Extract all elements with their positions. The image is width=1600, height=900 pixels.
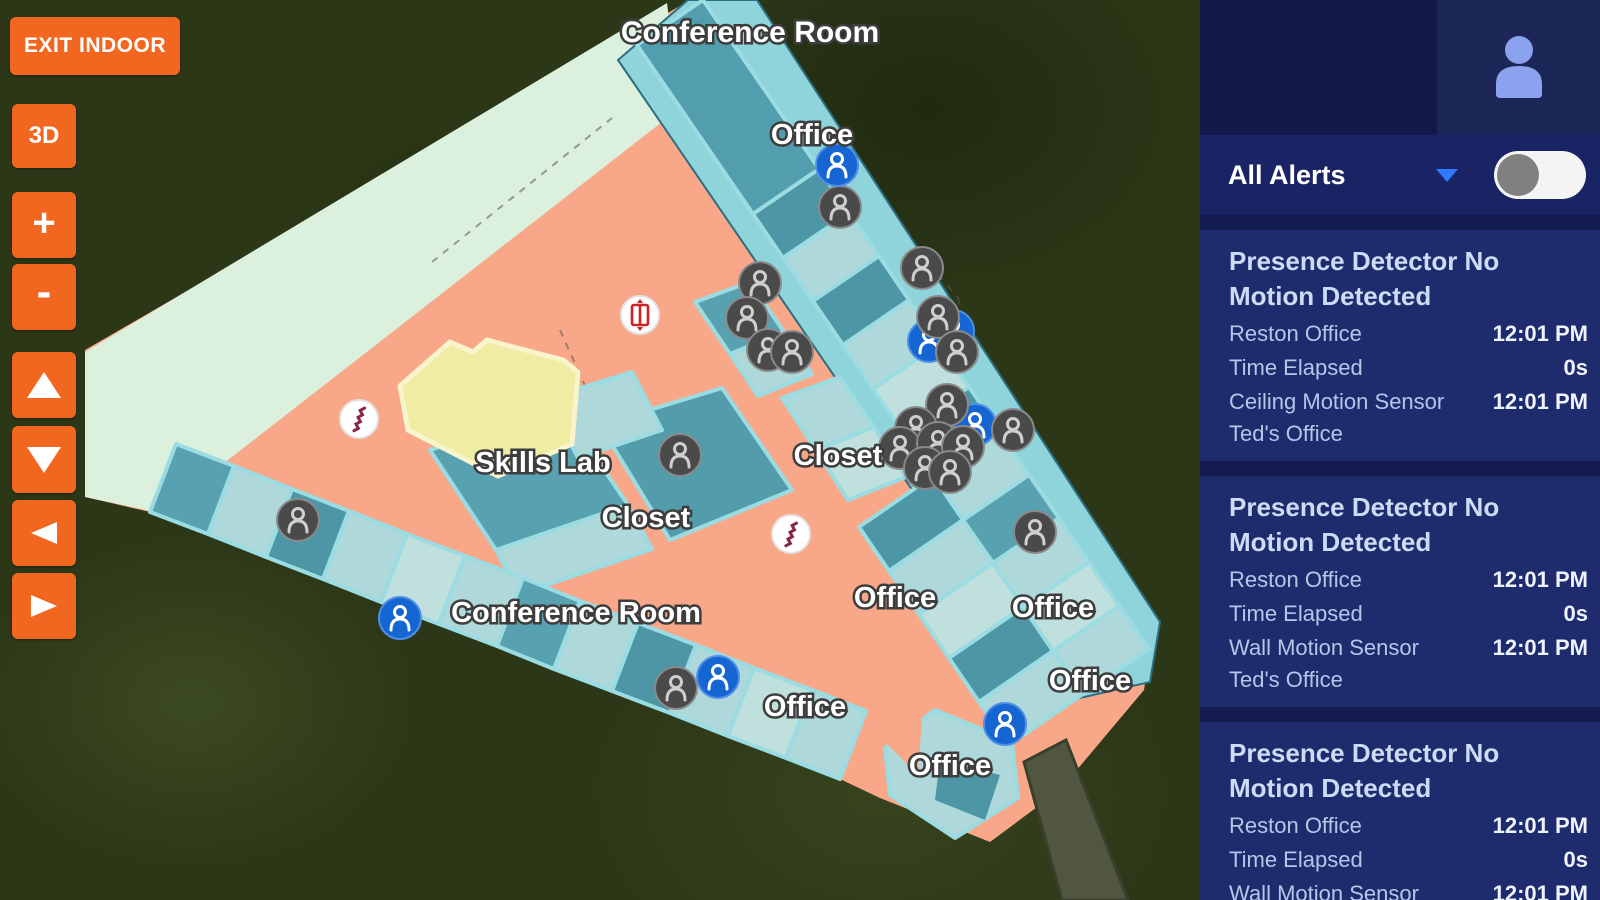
occupant-gray-marker[interactable]: [929, 451, 971, 493]
occupant-gray-marker[interactable]: [771, 331, 813, 373]
zoom-out-button[interactable]: -: [12, 264, 76, 330]
occupant-gray-marker[interactable]: [655, 667, 697, 709]
occupant-blue-marker[interactable]: [379, 597, 421, 639]
room-label: Skills Lab: [475, 447, 610, 479]
alert-list[interactable]: Presence Detector No Motion Detected Res…: [1200, 215, 1600, 900]
alert-elapsed-label: Time Elapsed: [1229, 847, 1363, 873]
zoom-in-button[interactable]: +: [12, 192, 76, 258]
profile-button[interactable]: [1437, 0, 1600, 135]
room-label: Office: [909, 750, 991, 782]
room-label: Conference Room: [451, 597, 701, 629]
alert-title: Presence Detector No Motion Detected: [1229, 736, 1559, 805]
alert-title: Presence Detector No Motion Detected: [1229, 244, 1559, 313]
alert-location: Reston Office: [1229, 321, 1362, 347]
alert-time: 12:01 PM: [1493, 567, 1588, 593]
alert-sensor-time: 12:01 PM: [1493, 389, 1588, 415]
occupant-blue-marker[interactable]: [697, 656, 739, 698]
arrow-down-icon: [27, 447, 61, 473]
sidebar-header-spacer: [1200, 0, 1437, 135]
alert-card[interactable]: Presence Detector No Motion Detected Res…: [1200, 476, 1600, 707]
alert-sensor: Wall Motion Sensor: [1229, 881, 1419, 900]
alert-title: Presence Detector No Motion Detected: [1229, 490, 1559, 559]
room-label: Conference Room: [621, 16, 879, 49]
occupant-gray-marker[interactable]: [901, 247, 943, 289]
alert-row: Ceiling Motion Sensor 12:01 PM: [1229, 389, 1588, 415]
room-label: Office: [764, 691, 846, 723]
arrow-left-icon: [31, 522, 57, 544]
floor-plan-svg[interactable]: Conference RoomOfficeSkills LabClosetClo…: [0, 0, 1200, 900]
elevator-icon: [621, 296, 659, 334]
alert-sensor-time: 12:01 PM: [1493, 635, 1588, 661]
alert-card[interactable]: Presence Detector No Motion Detected Res…: [1200, 230, 1600, 461]
alert-elapsed-value: 0s: [1564, 601, 1588, 627]
alert-row: Time Elapsed 0s: [1229, 847, 1588, 873]
exit-indoor-button[interactable]: EXIT INDOOR: [10, 17, 180, 75]
3d-mode-button[interactable]: 3D: [12, 104, 76, 168]
stairs-icon: [772, 515, 810, 553]
occupant-gray-marker[interactable]: [277, 499, 319, 541]
room-label: Office: [1012, 592, 1094, 624]
occupant-gray-marker[interactable]: [992, 409, 1034, 451]
alert-row: Wall Motion Sensor 12:01 PM: [1229, 881, 1588, 900]
alert-row: Reston Office 12:01 PM: [1229, 567, 1588, 593]
alert-card[interactable]: Presence Detector No Motion Detected Res…: [1200, 722, 1600, 900]
indoor-map[interactable]: Conference RoomOfficeSkills LabClosetClo…: [0, 0, 1200, 900]
alert-location: Reston Office: [1229, 813, 1362, 839]
occupant-gray-marker[interactable]: [1014, 511, 1056, 553]
arrow-up-icon: [27, 372, 61, 398]
room-label: Office: [854, 582, 936, 614]
alerts-sidebar: All Alerts Presence Detector No Motion D…: [1200, 0, 1600, 900]
alerts-filter-label: All Alerts: [1228, 160, 1346, 191]
alert-elapsed-value: 0s: [1564, 355, 1588, 381]
alerts-filter-row: All Alerts: [1200, 135, 1600, 215]
alert-time: 12:01 PM: [1493, 813, 1588, 839]
room-label: Closet: [602, 502, 691, 534]
arrow-right-icon: [31, 595, 57, 617]
sidebar-header: [1200, 0, 1600, 135]
alert-row: Time Elapsed 0s: [1229, 355, 1588, 381]
alert-room: Ted's Office: [1229, 667, 1588, 693]
alert-location: Reston Office: [1229, 567, 1362, 593]
occupant-gray-marker[interactable]: [659, 434, 701, 476]
room-label: Office: [1049, 665, 1131, 697]
room-label: Closet: [794, 440, 883, 472]
toggle-knob: [1497, 154, 1539, 196]
entrance-ramp: [1024, 740, 1128, 900]
occupant-gray-marker[interactable]: [819, 186, 861, 228]
alert-elapsed-value: 0s: [1564, 847, 1588, 873]
alert-time: 12:01 PM: [1493, 321, 1588, 347]
alert-sensor-time: 12:01 PM: [1493, 881, 1588, 900]
alert-elapsed-label: Time Elapsed: [1229, 355, 1363, 381]
room-label: Office: [771, 119, 853, 151]
person-icon: [1484, 28, 1554, 108]
alert-row: Time Elapsed 0s: [1229, 601, 1588, 627]
alert-room: Ted's Office: [1229, 421, 1588, 447]
alert-row: Reston Office 12:01 PM: [1229, 321, 1588, 347]
occupant-gray-marker[interactable]: [936, 331, 978, 373]
pan-down-button[interactable]: [12, 426, 76, 493]
alert-row: Wall Motion Sensor 12:01 PM: [1229, 635, 1588, 661]
alert-sensor: Wall Motion Sensor: [1229, 635, 1419, 661]
pan-left-button[interactable]: [12, 500, 76, 566]
stairs-icon: [340, 400, 378, 438]
app-root: Conference RoomOfficeSkills LabClosetClo…: [0, 0, 1600, 900]
pan-right-button[interactable]: [12, 573, 76, 639]
pan-up-button[interactable]: [12, 352, 76, 418]
alert-elapsed-label: Time Elapsed: [1229, 601, 1363, 627]
alert-row: Reston Office 12:01 PM: [1229, 813, 1588, 839]
alert-sensor: Ceiling Motion Sensor: [1229, 389, 1444, 415]
alerts-toggle[interactable]: [1494, 151, 1586, 199]
chevron-down-icon[interactable]: [1436, 169, 1458, 182]
occupant-blue-marker[interactable]: [984, 703, 1026, 745]
